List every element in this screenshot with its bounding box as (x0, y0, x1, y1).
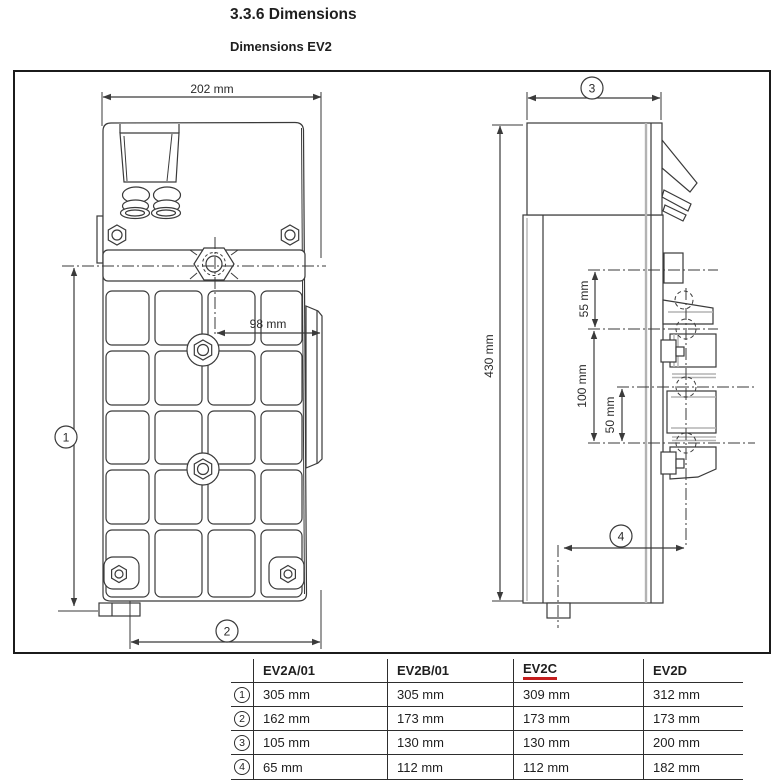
hinge-tab (97, 216, 103, 263)
column-header-ev2b01: EV2B/01 (388, 659, 514, 683)
table-cell: 200 mm (644, 731, 743, 755)
table-cell: 112 mm (388, 755, 514, 780)
table-cell: 65 mm (254, 755, 388, 780)
dim-label-50: 50 mm (603, 397, 617, 434)
column-header-ev2c: EV2C (514, 659, 644, 683)
table-cell: 312 mm (644, 683, 743, 707)
table-corner-cell (231, 659, 254, 683)
ref-circle-3: 3 (234, 735, 250, 751)
dim-label-55: 55 mm (577, 281, 591, 318)
manual-page: { "page": { "section_title": "3.3.6 Dime… (0, 0, 782, 783)
ref-balloon-1: 1 (63, 431, 70, 445)
ref-circle-4: 4 (234, 759, 250, 775)
ref-balloon-4: 4 (618, 530, 625, 544)
table-cell: 182 mm (644, 755, 743, 780)
column-header-ev2a01: EV2A/01 (254, 659, 388, 683)
table-cell: 130 mm (514, 731, 644, 755)
cable-hood (120, 133, 179, 182)
ref-balloon-3: 3 (589, 82, 596, 96)
side-connectors (661, 253, 716, 479)
row-ref-cell: 3 (231, 731, 254, 755)
technical-drawing: 202 mm 98 mm 430 mm 55 mm 100 mm 50 mm 1… (15, 72, 769, 652)
ref-circle-1: 1 (234, 687, 250, 703)
dim-label-height: 430 mm (482, 334, 496, 377)
dim-label-hole-offset: 98 mm (250, 317, 287, 331)
dim-label-100: 100 mm (575, 364, 589, 407)
table-cell: 130 mm (388, 731, 514, 755)
bottom-tab (99, 603, 140, 616)
angled-plug (662, 140, 697, 221)
side-body (523, 215, 663, 603)
table-cell: 309 mm (514, 683, 644, 707)
figure-frame: 202 mm 98 mm 430 mm 55 mm 100 mm 50 mm 1… (13, 70, 771, 654)
side-top-box (527, 123, 662, 215)
row-ref-cell: 1 (231, 683, 254, 707)
table-cell: 105 mm (254, 731, 388, 755)
front-view-drawing (97, 123, 322, 617)
table-cell: 173 mm (514, 707, 644, 731)
dimensions-table: EV2A/01 EV2B/01 EV2C EV2D 1 305 mm 305 m… (231, 659, 743, 780)
ref-circle-2: 2 (234, 711, 250, 727)
column-header-ev2d: EV2D (644, 659, 743, 683)
section-title: 3.3.6 Dimensions (230, 6, 357, 24)
table-cell: 173 mm (644, 707, 743, 731)
row-ref-cell: 4 (231, 755, 254, 780)
highlighted-column-label: EV2C (523, 661, 557, 680)
ref-balloon-2: 2 (224, 625, 231, 639)
row-ref-cell: 2 (231, 707, 254, 731)
dim-label-width: 202 mm (190, 82, 233, 96)
table-cell: 162 mm (254, 707, 388, 731)
table-cell: 305 mm (388, 683, 514, 707)
figure-title: Dimensions EV2 (230, 39, 332, 54)
table-cell: 112 mm (514, 755, 644, 780)
side-latch (306, 306, 322, 468)
table-cell: 305 mm (254, 683, 388, 707)
table-cell: 173 mm (388, 707, 514, 731)
